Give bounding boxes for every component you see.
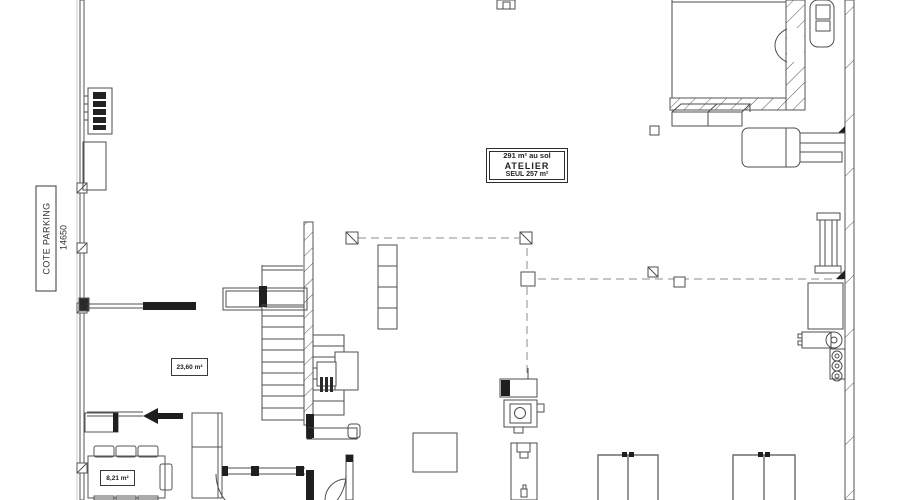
room-area-label-2360: 23,60 m²	[171, 358, 208, 376]
bottom-doors	[216, 414, 360, 500]
cabinet-boxes	[672, 112, 708, 126]
top-right-room	[670, 0, 805, 126]
welder	[802, 332, 831, 348]
atelier-area-seul: SEUL 257 m²	[506, 171, 549, 179]
fork	[800, 152, 842, 162]
chair	[160, 464, 172, 490]
cabinet	[808, 283, 843, 329]
axis-lines	[358, 238, 843, 376]
workbenches	[598, 452, 795, 500]
right-wall	[836, 0, 854, 500]
work-table	[413, 433, 457, 472]
chair	[138, 446, 158, 457]
ladder	[815, 213, 841, 273]
floor-plan-canvas	[0, 0, 900, 500]
stair-machine	[335, 352, 358, 390]
staircase	[223, 222, 358, 425]
chair	[94, 446, 114, 457]
kitchen-area	[85, 413, 222, 500]
wall-corner-mark	[838, 126, 845, 133]
cote-parking-label: COTE PARKING	[36, 186, 57, 292]
forklift	[742, 128, 845, 167]
machine-rounded	[810, 0, 834, 47]
atelier-label-box: 291 m² au sol ATELIER SEUL 257 m²	[486, 148, 568, 183]
electrical-panel	[83, 88, 112, 190]
dimension-14650: 14650	[57, 218, 70, 258]
shelving-unit	[378, 245, 397, 329]
atelier-area-total: 291 m² au sol	[503, 152, 551, 161]
workshop-machines	[413, 368, 544, 500]
atelier-title: ATELIER	[505, 161, 550, 171]
atelier-label-inner: 291 m² au sol ATELIER SEUL 257 m²	[489, 151, 565, 180]
fork	[800, 133, 845, 143]
door-swing	[775, 29, 787, 62]
door-direction-arrow	[143, 408, 183, 424]
floor-plan: COTE PARKING 14650 291 m² au sol ATELIER…	[0, 0, 900, 500]
chair	[116, 446, 136, 457]
stair-wall	[304, 222, 313, 425]
right-side-equipment	[798, 283, 845, 381]
left-wall	[77, 0, 89, 500]
column-markers	[346, 0, 685, 287]
room-area-label-821: 8,21 m²	[100, 470, 135, 486]
